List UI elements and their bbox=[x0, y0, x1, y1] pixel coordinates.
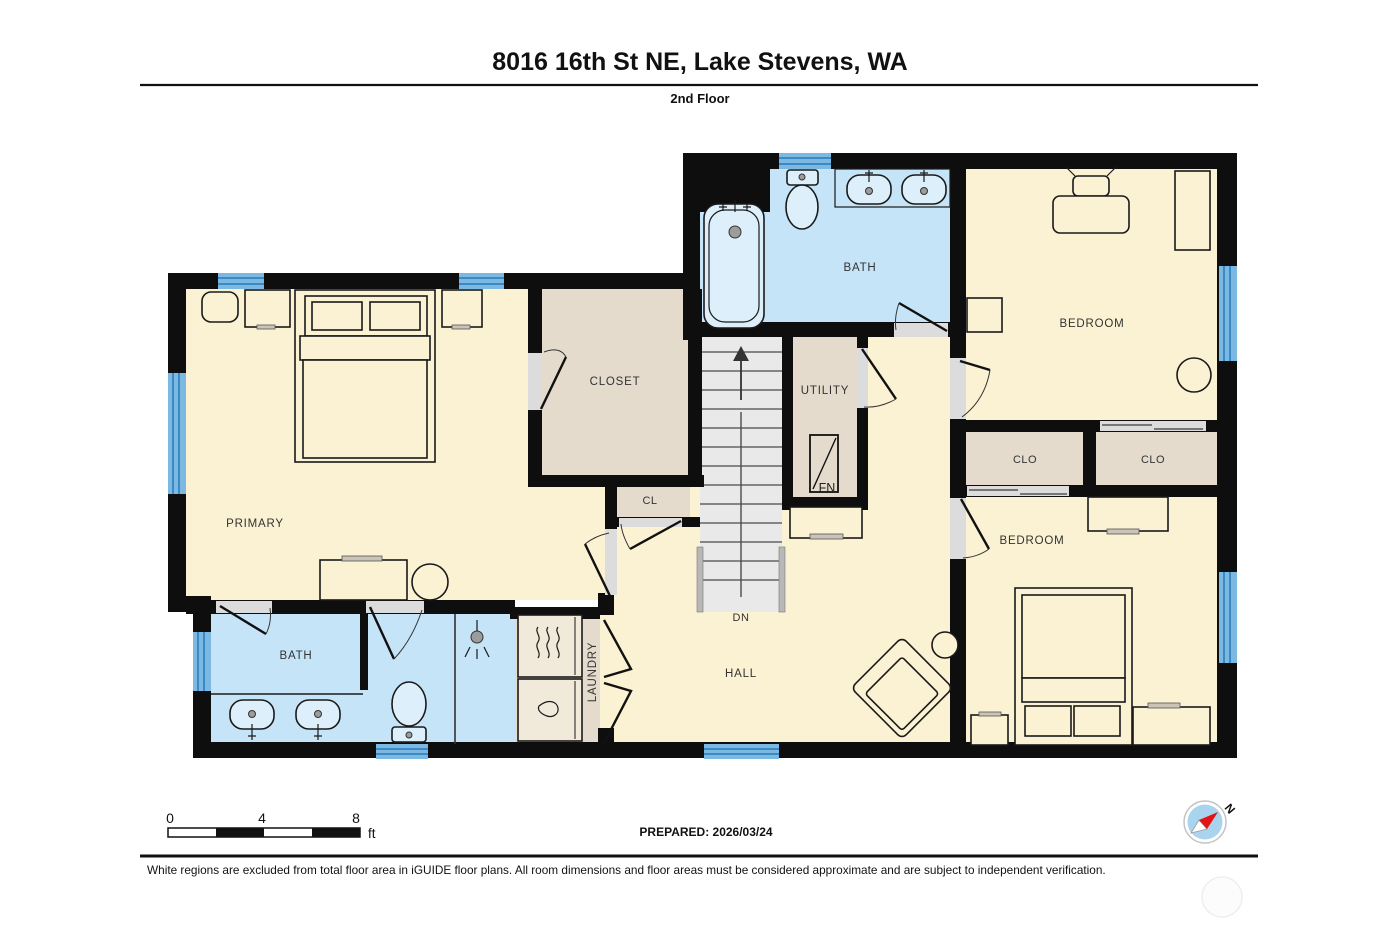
toilet-room-door-gap bbox=[366, 601, 424, 613]
watermark-circle bbox=[1202, 877, 1242, 917]
window bbox=[704, 744, 779, 759]
nightstand bbox=[245, 290, 290, 329]
washer bbox=[518, 679, 582, 741]
scale-tick-0: 0 bbox=[166, 810, 174, 826]
clo-left-label: CLO bbox=[1013, 454, 1037, 466]
window bbox=[193, 632, 211, 691]
chair bbox=[202, 292, 238, 322]
primary-door-gap bbox=[605, 529, 617, 595]
scale-bar: 0 4 8 ft bbox=[166, 810, 376, 841]
page-title: 8016 16th St NE, Lake Stevens, WA bbox=[492, 48, 907, 76]
compass-icon: N bbox=[1184, 801, 1238, 843]
window bbox=[1219, 266, 1237, 361]
toilet bbox=[392, 682, 426, 742]
dresser bbox=[1133, 703, 1210, 745]
floorplan-canvas: 8016 16th St NE, Lake Stevens, WA 2nd Fl… bbox=[0, 0, 1400, 932]
nightstand bbox=[442, 290, 482, 329]
window bbox=[168, 373, 186, 494]
primary-label: PRIMARY bbox=[226, 518, 284, 530]
bedroom-lower-label: BEDROOM bbox=[999, 535, 1064, 547]
closet-door-gap bbox=[528, 353, 542, 410]
cabinet bbox=[1175, 171, 1210, 250]
nightstand bbox=[971, 712, 1008, 745]
window bbox=[779, 153, 831, 169]
floor-label: 2nd Floor bbox=[670, 91, 729, 106]
laundry-label: LAUNDRY bbox=[587, 642, 599, 702]
bathtub bbox=[704, 200, 764, 328]
bath-lower-label: BATH bbox=[279, 650, 312, 662]
prepared-date: PREPARED: 2026/03/24 bbox=[639, 825, 773, 839]
disclaimer-text: White regions are excluded from total fl… bbox=[147, 863, 1106, 877]
toilet bbox=[786, 170, 818, 229]
bath-lower-door-gap bbox=[216, 601, 272, 613]
desk bbox=[1053, 196, 1129, 233]
window bbox=[459, 273, 504, 289]
bedroom-upper-label: BEDROOM bbox=[1059, 318, 1124, 330]
stool bbox=[412, 564, 448, 600]
hall-desk bbox=[790, 507, 862, 539]
hall-label: HALL bbox=[725, 668, 757, 680]
furnace-label: FN bbox=[819, 481, 836, 495]
bed bbox=[1015, 588, 1132, 745]
window bbox=[376, 744, 428, 759]
dresser bbox=[320, 556, 407, 600]
scale-tick-8: 8 bbox=[352, 810, 360, 826]
bedroom-upper-door-gap bbox=[950, 358, 966, 419]
stairs-down-label: DN bbox=[733, 612, 750, 624]
bath-upper-door-gap bbox=[894, 323, 948, 337]
dryer bbox=[518, 615, 582, 677]
scale-unit: ft bbox=[368, 826, 376, 841]
dresser bbox=[1088, 497, 1168, 534]
clo-right-sliding-doors bbox=[1100, 421, 1206, 431]
scale-tick-4: 4 bbox=[258, 810, 266, 826]
window bbox=[1219, 572, 1237, 663]
clo-right-label: CLO bbox=[1141, 454, 1165, 466]
stool bbox=[1177, 358, 1211, 392]
bedroom-lower-door-gap bbox=[950, 498, 966, 559]
bed bbox=[295, 290, 435, 462]
bath-upper-label: BATH bbox=[843, 262, 876, 274]
side-table bbox=[967, 298, 1002, 332]
window bbox=[218, 273, 264, 289]
utility-label: UTILITY bbox=[801, 385, 849, 397]
cl-label: CL bbox=[642, 495, 657, 507]
stair-rail-left bbox=[697, 547, 703, 612]
closet-label: CLOSET bbox=[590, 376, 641, 388]
round-table bbox=[932, 632, 958, 658]
clo-left-sliding-doors bbox=[967, 486, 1069, 496]
stair-rail-right bbox=[779, 547, 785, 612]
floorplan-page: 8016 16th St NE, Lake Stevens, WA 2nd Fl… bbox=[0, 0, 1400, 932]
